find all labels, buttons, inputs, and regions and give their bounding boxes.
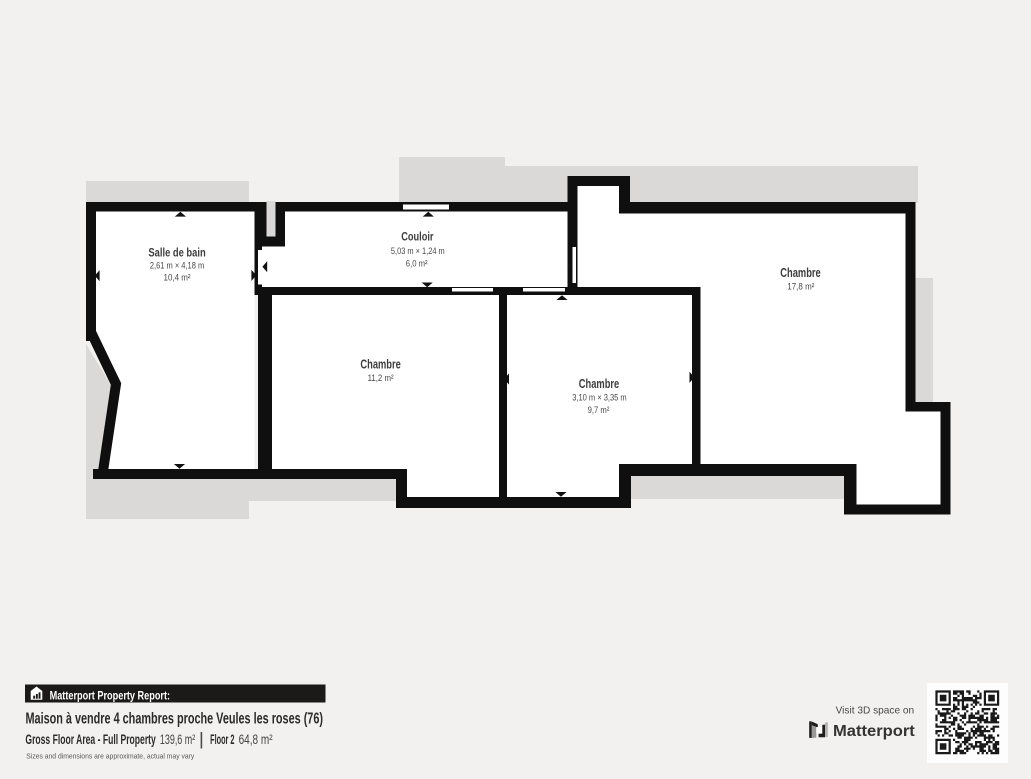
svg-text:Chambre: Chambre: [579, 377, 619, 391]
svg-text:11,2 m²: 11,2 m²: [368, 373, 394, 384]
svg-text:139,6 m²: 139,6 m²: [160, 732, 196, 747]
svg-text:3,10 m × 3,35 m: 3,10 m × 3,35 m: [572, 393, 627, 404]
svg-text:17,8 m²: 17,8 m²: [787, 281, 814, 292]
svg-text:9,7 m²: 9,7 m²: [588, 405, 610, 416]
svg-text:Matterport: Matterport: [833, 723, 915, 740]
svg-text:Visit 3D space on: Visit 3D space on: [836, 704, 915, 716]
svg-text:64,8 m²: 64,8 m²: [239, 732, 273, 747]
svg-text:6,0 m²: 6,0 m²: [406, 258, 428, 269]
svg-text:Salle de bain: Salle de bain: [148, 248, 205, 260]
svg-text:Gross Floor Area - Full Proper: Gross Floor Area - Full Property: [25, 732, 156, 747]
svg-text:Chambre: Chambre: [780, 266, 820, 280]
svg-text:10,4 m²: 10,4 m²: [164, 273, 191, 284]
svg-text:2,61 m × 4,18 m: 2,61 m × 4,18 m: [150, 261, 204, 272]
svg-text:Couloir: Couloir: [401, 232, 434, 244]
svg-text:Floor 2: Floor 2: [210, 732, 234, 747]
svg-text:5,03 m × 1,24 m: 5,03 m × 1,24 m: [391, 246, 445, 257]
svg-text:Chambre: Chambre: [360, 358, 400, 372]
svg-text:Matterport Property Report:: Matterport Property Report:: [50, 691, 171, 703]
svg-text:Sizes and dimensions are appro: Sizes and dimensions are approximate, ac…: [26, 752, 194, 761]
svg-text:Maison à vendre 4 chambres pro: Maison à vendre 4 chambres proche Veules…: [26, 711, 324, 728]
